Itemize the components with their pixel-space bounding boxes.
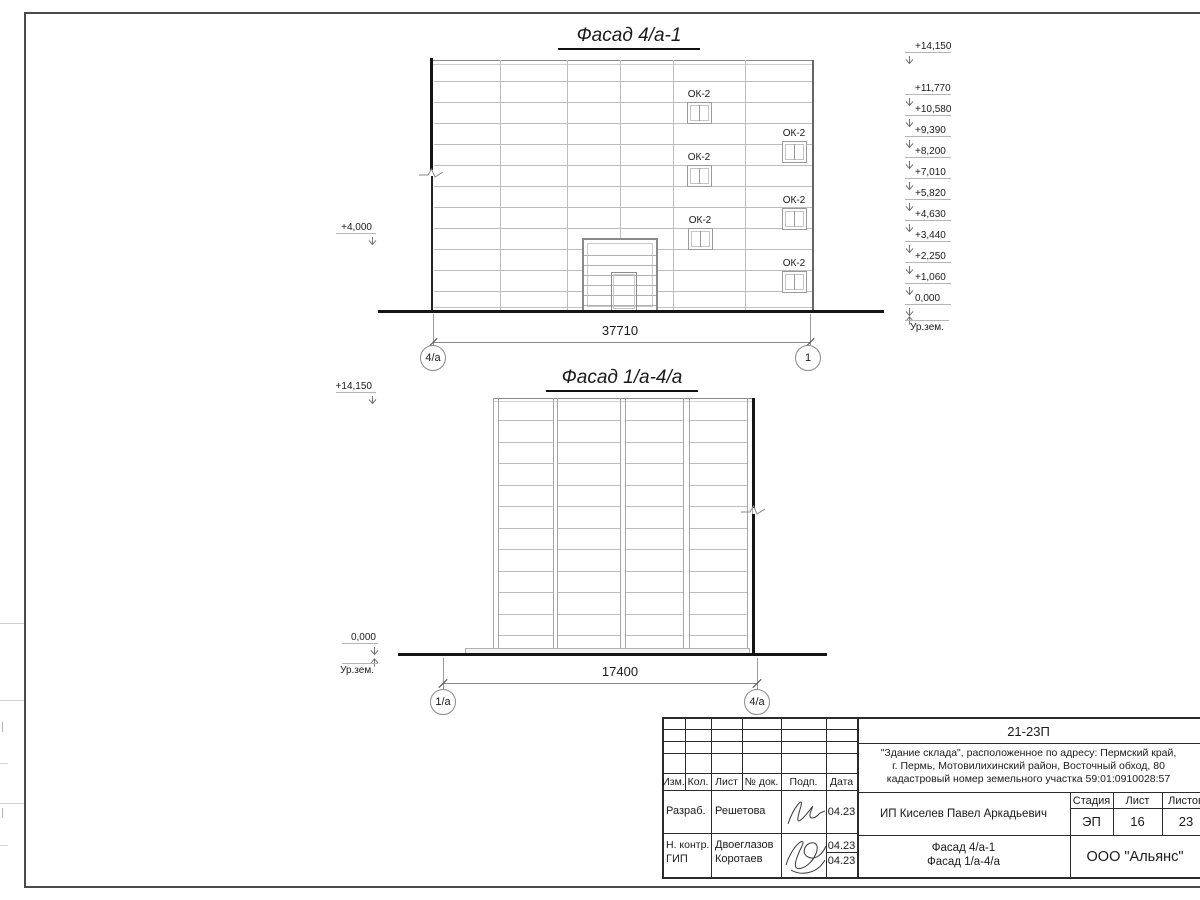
f1-panel-joint: [745, 60, 746, 312]
window-tag-label: ОК-2: [774, 257, 814, 271]
f2-ground-line: [398, 653, 827, 656]
f1-ground-line: [378, 310, 884, 313]
level-label: +4,630: [915, 208, 955, 222]
f2-panel-line: [557, 485, 620, 486]
tb-description-line3: кадастровый номер земельного участка 59:…: [859, 772, 1198, 785]
margin-mark: [2, 808, 3, 818]
f1-panel-line: [434, 186, 812, 187]
f2-panel-line: [498, 614, 553, 615]
f2-corner-line: [752, 514, 755, 655]
f2-panel-line: [498, 485, 553, 486]
level-mark-icon: [905, 220, 914, 229]
window-mullion: [794, 274, 795, 290]
f2-panel-line: [557, 614, 620, 615]
f2-panel-line: [498, 463, 553, 464]
f2-panel-line: [557, 463, 620, 464]
gate-slat: [584, 255, 656, 256]
level-label: +8,200: [915, 145, 955, 159]
level-label: +7,010: [915, 166, 955, 180]
f2-panel-line: [498, 635, 553, 636]
tb-sheet-title-line2: Фасад 1/а-4/а: [857, 855, 1070, 869]
wicket-door-inner: [613, 274, 635, 309]
f2-panel-joint: [683, 398, 684, 655]
tb-line: [662, 833, 857, 834]
level-label: +1,060: [915, 271, 955, 285]
level-label: +9,390: [915, 124, 955, 138]
f1-corner-line: [430, 58, 433, 170]
tb-description-line2: г. Пермь, Мотовилихинский район, Восточн…: [859, 759, 1198, 772]
f2-panel-line: [625, 592, 683, 593]
level-mark-icon: [905, 262, 914, 271]
f1-panel-line: [434, 123, 812, 124]
f2-panel-line: [557, 442, 620, 443]
dim-extension-line: [757, 658, 758, 692]
f2-panel-joint: [493, 398, 494, 655]
axis-bubble-1: 1: [795, 345, 821, 371]
f2-panel-line: [689, 528, 747, 529]
f2-panel-line: [557, 571, 620, 572]
f2-panel-line: [498, 592, 553, 593]
f2-panel-line: [689, 485, 747, 486]
tb-col-izm: Изм.: [662, 774, 685, 789]
level-mark-icon: [905, 178, 914, 187]
tb-description-line1: "Здание склада", расположенное по адресу…: [859, 746, 1198, 759]
tb-line: [662, 741, 857, 742]
f1-panel-joint: [673, 60, 674, 312]
f2-panel-line: [498, 549, 553, 550]
tb-project-code: 21-23П: [857, 719, 1200, 743]
level-mark-icon: [905, 157, 914, 166]
f2-panel-line: [689, 420, 747, 421]
tb-sheet-header: Лист: [1113, 793, 1162, 808]
level-label: +14,150: [915, 40, 955, 54]
f2-panel-line: [625, 420, 683, 421]
tb-date-razrab: 04.23: [826, 805, 857, 818]
signature-gip: [779, 831, 827, 877]
f1-panel-line: [434, 165, 812, 166]
tb-name-ncontr: Двоеглазов: [715, 839, 785, 851]
margin-line: [0, 763, 8, 764]
f2-panel-joint: [498, 398, 499, 655]
level-mark-icon: [905, 283, 914, 292]
f2-panel-joint: [747, 398, 748, 655]
f2-panel-line: [625, 635, 683, 636]
f1-panel-joint: [620, 60, 621, 238]
window-mullion: [794, 211, 795, 227]
window-tag-label: ОК-2: [679, 88, 719, 102]
window-tag-label: ОК-2: [679, 151, 719, 165]
margin-mark: [2, 722, 3, 732]
f2-panel-line: [625, 549, 683, 550]
tb-client: ИП Киселев Павел Аркадьевич: [857, 792, 1070, 835]
f2-panel-line: [625, 463, 683, 464]
tb-sheet-value: 16: [1113, 808, 1162, 835]
level-label: 0,000: [336, 631, 376, 645]
dim-value: 17400: [585, 664, 655, 681]
level-label: +11,770: [915, 82, 955, 96]
f1-top-edge: [433, 60, 813, 61]
level-mark-icon: [905, 199, 914, 208]
f2-panel-line: [498, 442, 553, 443]
tb-line: [826, 852, 857, 853]
f2-panel-joint: [620, 398, 621, 655]
level-mark-icon: [370, 654, 379, 663]
tb-col-podp: Подп.: [781, 774, 826, 789]
window-tag-label: ОК-2: [680, 214, 720, 228]
f2-panel-line: [625, 485, 683, 486]
f2-panel-joint: [553, 398, 554, 655]
tb-line: [662, 790, 857, 791]
f2-panel-line: [557, 549, 620, 550]
f2-parapet-line: [493, 401, 752, 402]
f2-panel-line: [498, 528, 553, 529]
axis-bubble-4a: 4/а: [744, 689, 770, 715]
tb-col-kol: Кол.: [685, 774, 711, 789]
tb-col-doc: № док.: [742, 774, 781, 789]
f2-panel-line: [498, 571, 553, 572]
f2-panel-joint: [625, 398, 626, 655]
f2-panel-joint: [557, 398, 558, 655]
f2-panel-line: [689, 506, 747, 507]
margin-line: [0, 700, 24, 701]
f1-panel-line: [434, 81, 812, 82]
f1-panel-line: [434, 144, 812, 145]
f2-panel-line: [689, 592, 747, 593]
f2-panel-line: [498, 506, 553, 507]
f2-panel-line: [689, 549, 747, 550]
f1-corner-line: [431, 176, 433, 312]
f2-panel-line: [689, 463, 747, 464]
f2-corner-line: [752, 398, 755, 508]
tb-role-razrab: Разраб.: [666, 805, 712, 817]
f2-panel-line: [689, 571, 747, 572]
margin-line: [0, 845, 8, 846]
level-mark-icon: [905, 52, 914, 61]
f2-panel-line: [557, 635, 620, 636]
tb-name-gip: Коротаев: [715, 853, 785, 865]
f2-panel-line: [557, 592, 620, 593]
tb-organization: ООО "Альянс": [1070, 835, 1200, 878]
f2-panel-line: [689, 635, 747, 636]
f1-panel-joint: [567, 60, 568, 312]
margin-line: [0, 803, 24, 804]
f2-panel-line: [557, 420, 620, 421]
level-label: +5,820: [915, 187, 955, 201]
level-label: +14,150: [328, 380, 372, 394]
f1-right-edge: [812, 60, 814, 312]
f2-panel-joint: [689, 398, 690, 655]
level-label: +3,440: [915, 229, 955, 243]
tb-stage-header: Стадия: [1070, 793, 1113, 808]
f1-panel-line: [434, 102, 812, 103]
axis-bubble-4a: 4/а: [420, 345, 446, 371]
f2-panel-line: [625, 614, 683, 615]
signature-razrab: [782, 792, 826, 832]
dim-line: [433, 342, 810, 343]
level-mark-icon: [905, 115, 914, 124]
f2-panel-line: [625, 442, 683, 443]
window-mullion: [699, 105, 700, 121]
f2-panel-line: [625, 506, 683, 507]
level-label: +2,250: [915, 250, 955, 264]
drawing-sheet: Фасад 4/а-1 Фасад 1/а-4/а ОК-2ОК-2ОК-2ОК…: [0, 0, 1200, 900]
level-label: +4,000: [330, 221, 372, 235]
window-mullion: [794, 144, 795, 160]
f2-panel-line: [689, 614, 747, 615]
tb-line: [857, 743, 1200, 744]
gate-slat: [584, 265, 656, 266]
window-tag-label: ОК-2: [774, 127, 814, 141]
tb-sheets-header: Листов: [1162, 793, 1200, 808]
f2-panel-line: [557, 506, 620, 507]
f1-panel-line: [434, 207, 812, 208]
level-label: 0,000: [915, 292, 955, 306]
f1-parapet-line: [433, 64, 813, 65]
ground-level-label: Ур.зем.: [332, 664, 374, 678]
f2-top-edge: [493, 398, 752, 399]
f2-panel-line: [498, 420, 553, 421]
tb-sheet-title-line1: Фасад 4/а-1: [857, 841, 1070, 855]
tb-date-gip: 04.23: [826, 854, 857, 867]
window-mullion: [700, 231, 701, 247]
tb-stage-value: ЭП: [1070, 808, 1113, 835]
dim-value: 37710: [585, 323, 655, 340]
f2-panel-line: [557, 528, 620, 529]
level-mark-icon: [905, 94, 914, 103]
dim-line: [443, 683, 757, 684]
window-tag-label: ОК-2: [774, 194, 814, 208]
tb-date-ncontr: 04.23: [826, 839, 857, 852]
tb-line: [662, 753, 857, 754]
f2-panel-line: [625, 571, 683, 572]
tb-sheets-value: 23: [1162, 808, 1200, 835]
axis-bubble-1a: 1/а: [430, 689, 456, 715]
f2-panel-line: [689, 442, 747, 443]
margin-line: [0, 623, 24, 624]
tb-col-list: Лист: [711, 774, 742, 789]
tb-col-data: Дата: [826, 774, 857, 789]
f1-panel-joint: [500, 60, 501, 312]
f2-panel-line: [625, 528, 683, 529]
level-mark-icon: [905, 241, 914, 250]
level-label: +10,580: [915, 103, 955, 117]
tb-name-razrab: Решетова: [715, 805, 781, 817]
f1-panel-line: [434, 228, 812, 229]
tb-role-gip: ГИП: [666, 853, 712, 865]
window-mullion: [699, 168, 700, 184]
dim-extension-line: [443, 658, 444, 692]
ground-level-label: Ур.зем.: [910, 321, 952, 335]
tb-line: [662, 729, 857, 730]
level-mark-icon: [905, 136, 914, 145]
